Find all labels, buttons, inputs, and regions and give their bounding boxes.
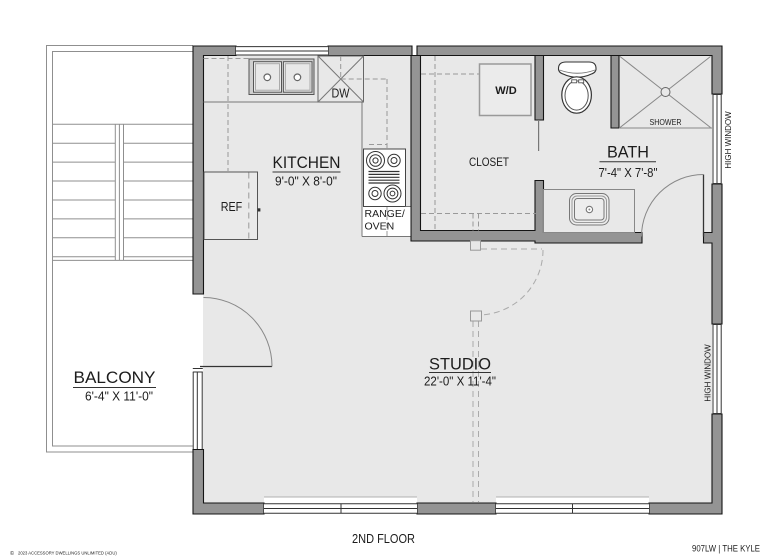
svg-text:REF: REF <box>221 200 243 214</box>
svg-text:HIGH WINDOW: HIGH WINDOW <box>724 111 733 169</box>
svg-text:DW: DW <box>332 87 350 101</box>
svg-text:KITCHEN: KITCHEN <box>273 153 341 172</box>
svg-text:2ND FLOOR: 2ND FLOOR <box>352 532 415 546</box>
svg-text:BATH: BATH <box>607 143 649 162</box>
svg-text:907LW | THE KYLE: 907LW | THE KYLE <box>692 544 760 555</box>
svg-text:STUDIO: STUDIO <box>429 355 491 374</box>
svg-text:RANGE/: RANGE/ <box>365 208 405 220</box>
svg-text:©: © <box>10 550 14 557</box>
svg-text:7'-4" X 7'-8": 7'-4" X 7'-8" <box>599 166 658 180</box>
svg-text:6'-4" X 11'-0": 6'-4" X 11'-0" <box>85 390 153 404</box>
svg-text:CLOSET: CLOSET <box>469 155 510 169</box>
svg-text:OVEN: OVEN <box>365 221 395 233</box>
svg-text:HIGH WINDOW: HIGH WINDOW <box>704 344 713 402</box>
svg-text:BALCONY: BALCONY <box>74 368 156 387</box>
svg-text:22'-0" X 11'-4": 22'-0" X 11'-4" <box>424 375 496 389</box>
svg-text:9'-0" X 8'-0": 9'-0" X 8'-0" <box>275 175 337 189</box>
svg-text:W/D: W/D <box>495 85 517 97</box>
svg-text:2023 ACCESSORY DWELLINGS UNLIM: 2023 ACCESSORY DWELLINGS UNLIMITED (ADU) <box>18 551 117 556</box>
svg-text:SHOWER: SHOWER <box>650 118 682 127</box>
